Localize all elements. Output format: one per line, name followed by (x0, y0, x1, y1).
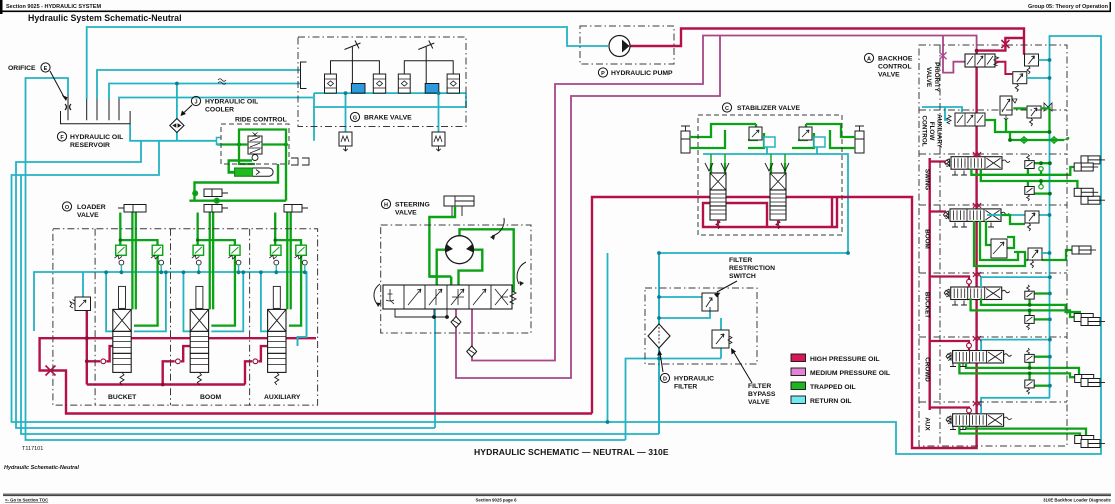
svg-text:Group 05: Theory of Operation: Group 05: Theory of Operation (1028, 4, 1109, 10)
svg-text:SWING: SWING (924, 169, 931, 190)
svg-text:FILTER: FILTER (674, 384, 697, 391)
svg-text:VALVE: VALVE (878, 72, 900, 79)
svg-text:P: P (601, 71, 605, 77)
svg-text:FLOW: FLOW (928, 122, 935, 141)
svg-text:T117101: T117101 (22, 446, 43, 452)
svg-text:FILTER: FILTER (748, 383, 771, 390)
svg-text:Section 9025 page 6: Section 9025 page 6 (475, 498, 517, 503)
svg-text:VALVE: VALVE (77, 212, 99, 219)
svg-text:BUCKET: BUCKET (108, 394, 137, 401)
svg-text:G: G (353, 116, 357, 122)
svg-text:COOLER: COOLER (205, 107, 234, 114)
svg-text:HYDRAULIC OIL: HYDRAULIC OIL (70, 134, 123, 141)
svg-text:RIDE CONTROL: RIDE CONTROL (235, 117, 287, 124)
svg-text:Hydraulic System Schematic-Neu: Hydraulic System Schematic-Neutral (28, 13, 182, 23)
svg-text:AUX: AUX (924, 417, 931, 431)
svg-text:VALVE: VALVE (748, 399, 770, 406)
svg-text:J: J (194, 100, 197, 106)
svg-text:RESERVOIR: RESERVOIR (70, 142, 110, 149)
svg-text:BACKHOE: BACKHOE (878, 56, 913, 63)
svg-text:VALVE: VALVE (925, 67, 932, 87)
svg-text:F: F (60, 135, 64, 141)
svg-text:ORIFICE: ORIFICE (8, 65, 36, 72)
svg-text:AUXILIARY: AUXILIARY (936, 114, 943, 149)
svg-text:CROWD: CROWD (924, 357, 931, 382)
svg-text:BOOM: BOOM (924, 229, 931, 249)
svg-text:HYDRAULIC PUMP: HYDRAULIC PUMP (611, 70, 673, 77)
svg-text:E: E (44, 66, 48, 72)
svg-text:TRAPPED OIL: TRAPPED OIL (810, 384, 856, 391)
svg-text:CONTROL: CONTROL (878, 64, 912, 71)
svg-text:Hydraulic Schematic-Neutral: Hydraulic Schematic-Neutral (4, 465, 79, 471)
svg-text:STABILIZER VALVE: STABILIZER VALVE (737, 105, 801, 112)
svg-text:H: H (384, 203, 388, 209)
svg-text:BRAKE VALVE: BRAKE VALVE (364, 115, 412, 122)
svg-text:BUCKET: BUCKET (924, 292, 931, 318)
svg-text:HIGH PRESSURE OIL: HIGH PRESSURE OIL (810, 356, 880, 363)
svg-text:310E Backhoe Loader Diagnostic: 310E Backhoe Loader Diagnostic (1043, 498, 1111, 503)
svg-text:AUXILIARY: AUXILIARY (264, 394, 301, 401)
svg-text:BOOM: BOOM (200, 394, 221, 401)
svg-text:CONTROL: CONTROL (921, 115, 928, 146)
svg-text:C: C (725, 106, 729, 112)
svg-text:RESTRICTION: RESTRICTION (729, 265, 775, 272)
svg-text:RETURN OIL: RETURN OIL (810, 398, 852, 405)
svg-text:PRIORITY: PRIORITY (933, 62, 940, 93)
svg-text:BYPASS: BYPASS (748, 391, 776, 398)
svg-text:HYDRAULIC: HYDRAULIC (674, 376, 714, 383)
svg-text:FILTER: FILTER (729, 257, 752, 264)
svg-text:O: O (65, 205, 70, 211)
svg-text:A: A (867, 57, 871, 63)
svg-text:<- Go to Section TOC: <- Go to Section TOC (5, 498, 48, 503)
svg-text:SWITCH: SWITCH (729, 273, 756, 280)
svg-text:Section 9025 - HYDRAULIC SYSTE: Section 9025 - HYDRAULIC SYSTEM (6, 4, 101, 10)
svg-text:HYDRAULIC SCHEMATIC — NEUTRAL: HYDRAULIC SCHEMATIC — NEUTRAL — 310E (474, 447, 669, 457)
svg-text:MEDIUM PRESSURE OIL: MEDIUM PRESSURE OIL (810, 370, 890, 377)
svg-text:STEERING: STEERING (395, 202, 430, 209)
svg-text:VALVE: VALVE (395, 210, 417, 217)
svg-text:LOADER: LOADER (77, 204, 106, 211)
svg-text:HYDRAULIC OIL: HYDRAULIC OIL (205, 99, 258, 106)
svg-text:D: D (663, 377, 667, 383)
